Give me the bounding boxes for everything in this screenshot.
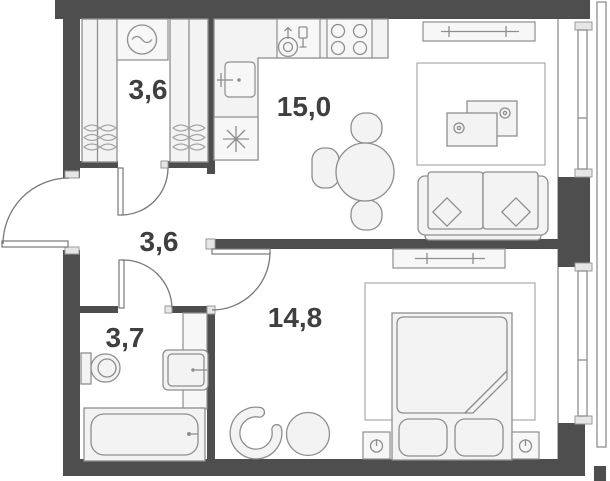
bed-pillow [455,419,503,456]
dining-set [312,113,394,230]
room-area-label-hallway: 3,6 [140,226,179,257]
nightstand-knob-icon [363,432,390,459]
door-swing-icon [212,252,270,310]
nightstand-knob-icon [512,432,539,459]
door-leaf [118,168,123,215]
toilet-icon [81,353,120,384]
window-pier-bottom [558,423,585,476]
entrance-door [2,178,69,247]
bathroom-door [119,260,172,308]
door-swing-icon [122,260,172,308]
wall-left-lower [63,250,80,476]
door-leaf [2,241,68,247]
facade-stub [594,466,606,481]
armchair-icon [235,412,277,454]
wall-top [55,0,590,19]
freezer-snowflake-icon [214,117,258,160]
door-jamb [165,306,172,313]
bed-icon [392,313,512,460]
bedroom-console-icon [393,249,505,268]
sofa-icon [418,172,548,240]
window-jamb [575,416,592,424]
closet-left [82,19,117,162]
window-icon [578,271,587,416]
dishwasher-icon [277,19,320,58]
facade-line [597,2,606,447]
room-area-label-dressing: 3,6 [129,74,168,105]
door-leaf [212,249,270,254]
dining-chair [351,113,382,143]
bathroom [81,313,208,461]
bathtub-icon [84,408,205,461]
door-swing-icon [3,178,69,244]
room-area-label-bedroom: 14,8 [268,302,323,333]
window-jamb [575,263,592,271]
window-icon [578,30,587,169]
bed-pillow [399,419,447,456]
room-area-label-bathroom: 3,7 [106,322,145,353]
washing-machine-icon [117,19,168,60]
tv-table-icon [447,113,497,146]
washbasin-icon [163,350,208,390]
room-area-label-kitchen: 15,0 [277,91,332,122]
wall-bathroom-top-left [80,306,118,313]
stove-burners-icon [327,19,372,58]
door-swing-icon [121,168,168,215]
window-jamb [575,169,592,177]
sideboard-icon [423,22,535,41]
pouf-icon [287,413,330,456]
door-jamb [161,161,168,168]
floor-plan-drawing: 3,6 15,0 3,6 3,7 14,8 [0,0,610,481]
door-leaf [119,260,124,308]
window-jamb [575,22,592,30]
dining-chair [312,148,339,188]
door-jamb [65,171,79,178]
dining-table-icon [336,143,394,201]
door-jamb [65,247,79,254]
dining-chair [351,200,382,230]
door-jamb [206,239,215,249]
bedroom-door [212,249,270,310]
floor-plan: 3,6 15,0 3,6 3,7 14,8 [0,0,610,481]
dressing-door [118,168,168,215]
wall-left-upper [63,0,80,178]
bedroom [235,249,539,460]
window-pier-middle [558,177,590,267]
living-area [417,22,548,240]
